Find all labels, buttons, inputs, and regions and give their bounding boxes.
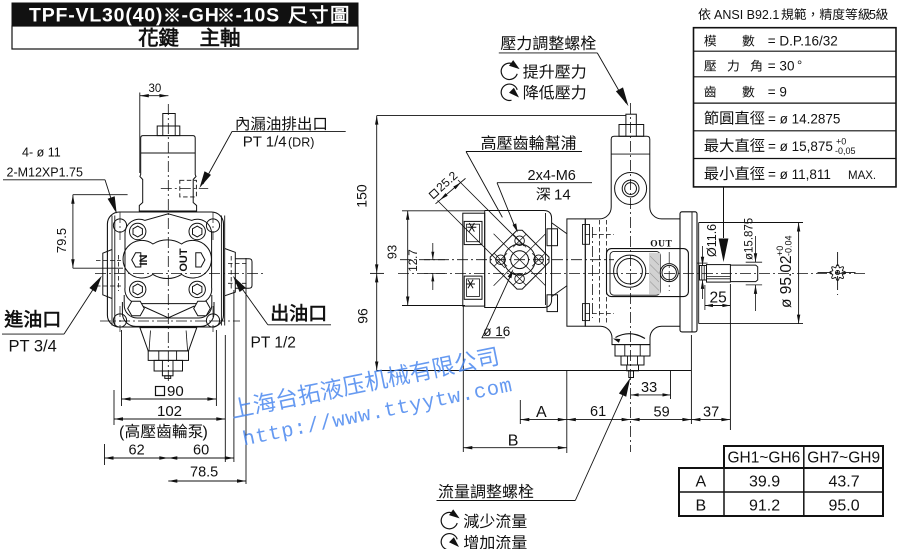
svg-text:-0,05: -0,05 [835,146,856,156]
svg-text:PT 1/4: PT 1/4 [243,134,287,151]
svg-text:Ø11.6: Ø11.6 [705,224,719,257]
svg-text:59: 59 [654,405,670,421]
svg-text:= ø 11,811: = ø 11,811 [768,167,831,182]
svg-text:= 9: = 9 [768,85,787,100]
svg-text:PT 1/2: PT 1/2 [251,335,296,352]
svg-text:25: 25 [710,290,727,307]
svg-text:14: 14 [554,187,571,204]
svg-text:(DR): (DR) [288,136,314,150]
svg-text:-10S: -10S [236,5,280,27]
svg-text:-0.04: -0.04 [784,235,794,256]
svg-text:2x4-M6: 2x4-M6 [528,168,576,184]
svg-text:ANSI B92.1: ANSI B92.1 [714,8,779,22]
svg-text:95.0: 95.0 [829,498,860,515]
svg-text:TPF-VL30(40): TPF-VL30(40) [29,5,163,27]
svg-text:A: A [536,404,547,421]
svg-text:+0: +0 [836,137,846,147]
svg-text:PT 3/4: PT 3/4 [9,338,57,356]
svg-text:39.9: 39.9 [749,474,780,491]
svg-text:GH7~GH9: GH7~GH9 [807,450,880,467]
svg-text:ø 95.02: ø 95.02 [778,255,795,308]
svg-text:): ) [203,424,208,441]
svg-text:= ø 15,875: = ø 15,875 [768,139,833,154]
svg-text:OUT: OUT [178,248,190,272]
svg-text:= ø 14.2875: = ø 14.2875 [768,112,840,127]
svg-text:37: 37 [703,405,719,421]
svg-text:= D.P.16/32: = D.P.16/32 [768,34,838,49]
svg-text:79.5: 79.5 [54,228,69,253]
svg-text:MAX.: MAX. [848,170,876,182]
svg-text:4- ø 11: 4- ø 11 [22,146,61,160]
svg-text:61: 61 [590,404,606,420]
svg-text:12.7: 12.7 [408,249,420,271]
svg-text:43.7: 43.7 [829,474,860,491]
svg-text:150: 150 [354,184,370,208]
svg-text:GH1~GH6: GH1~GH6 [728,450,801,467]
svg-text:IN: IN [138,254,150,265]
svg-text:30: 30 [149,83,162,95]
svg-text:5: 5 [869,8,876,22]
svg-text:OUT: OUT [650,240,672,250]
svg-text:A: A [696,474,707,491]
svg-text:96: 96 [355,308,371,324]
svg-text:B: B [508,433,519,450]
svg-text:102: 102 [157,403,182,420]
svg-text:60: 60 [193,443,209,459]
svg-text:78.5: 78.5 [190,465,218,481]
svg-text:62: 62 [129,443,145,459]
svg-text:33: 33 [641,380,657,396]
svg-text:91.2: 91.2 [749,498,780,515]
svg-text:ø15.875: ø15.875 [744,218,756,260]
svg-text:-GH: -GH [182,5,220,27]
svg-text:90: 90 [167,383,184,400]
svg-text:93: 93 [385,245,400,259]
svg-text:°: ° [797,58,802,73]
svg-text:2-M12XP1.75: 2-M12XP1.75 [7,166,83,180]
svg-text:= 30: = 30 [768,59,795,74]
svg-text:(: ( [119,424,125,441]
svg-text:B: B [696,498,707,515]
